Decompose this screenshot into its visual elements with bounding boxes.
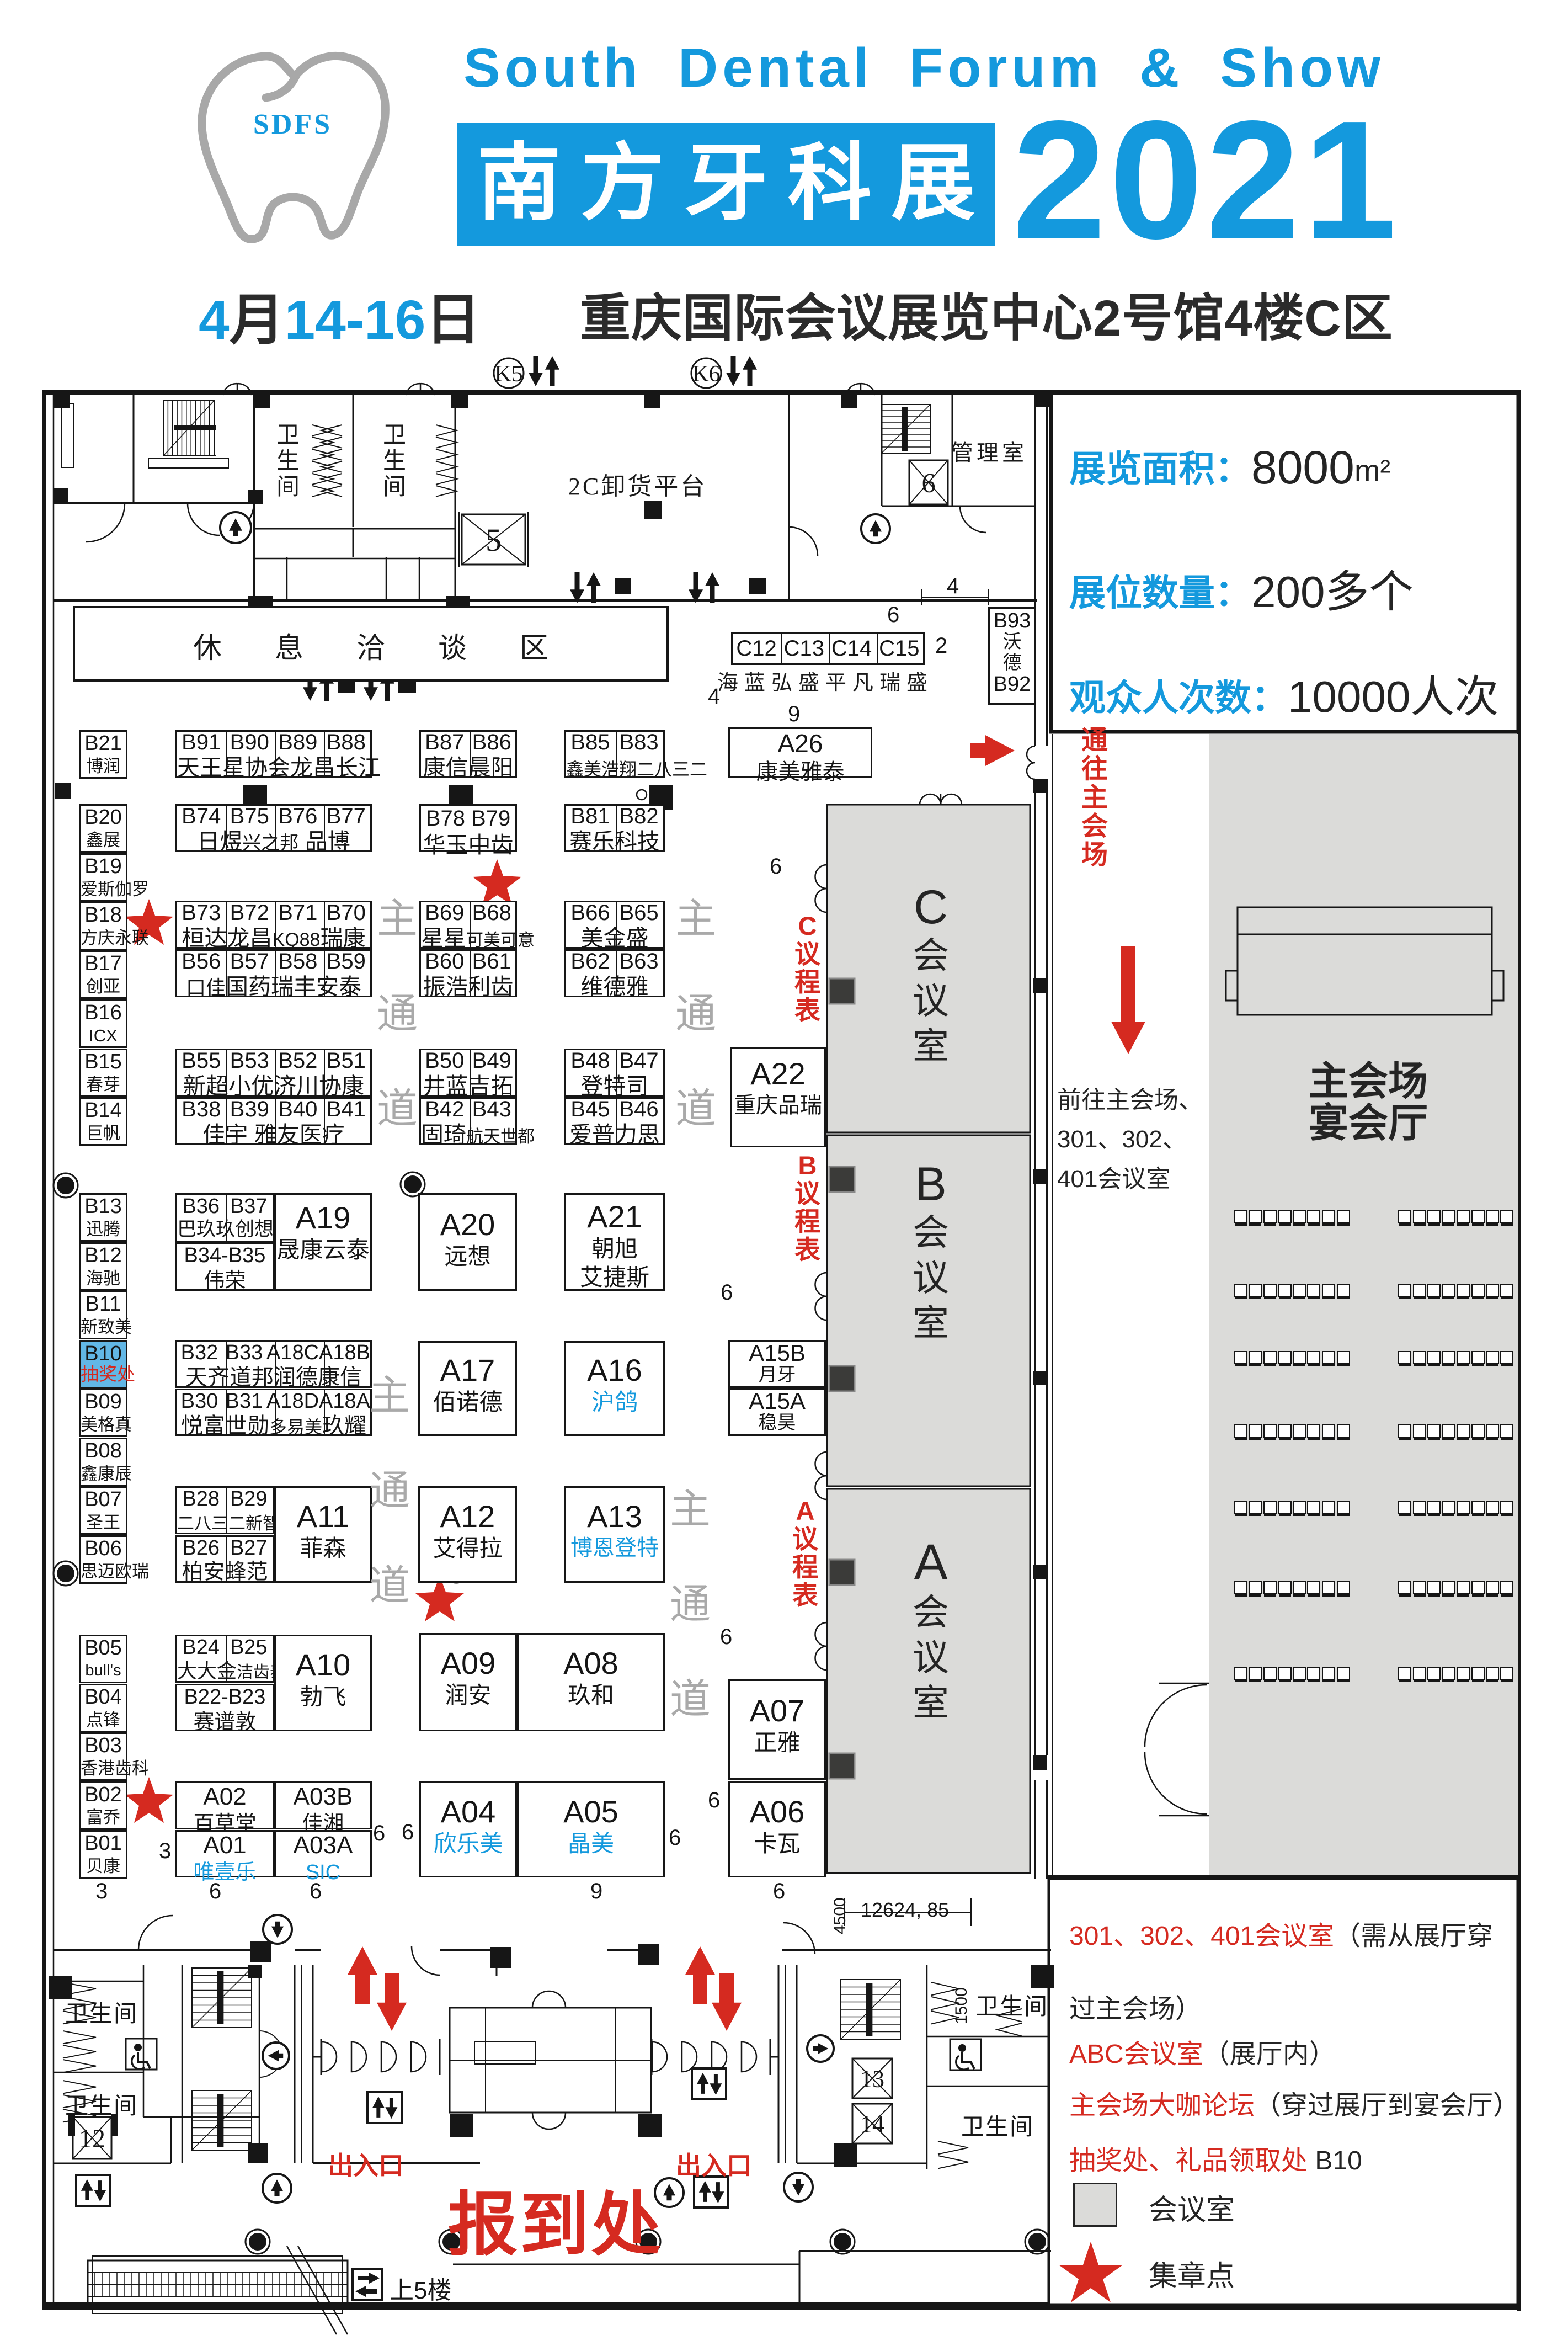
svg-text:13: 13: [860, 2065, 884, 2092]
svg-text:14: 14: [860, 2110, 884, 2137]
svg-text:5: 5: [486, 522, 502, 558]
svg-text:12: 12: [79, 2124, 105, 2153]
svg-text:6: 6: [922, 467, 936, 498]
svg-text:K6: K6: [692, 361, 720, 387]
svg-text:K5: K5: [494, 361, 522, 387]
